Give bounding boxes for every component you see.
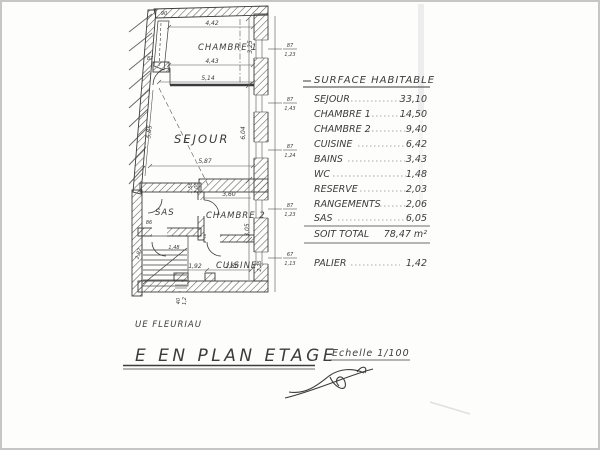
window5-w: 67 <box>287 252 294 258</box>
scale-label: Echelle 1/100 <box>332 348 410 359</box>
window1-h: 1,23 <box>284 52 295 58</box>
window3-h: 1,24 <box>284 153 295 159</box>
dim-bottom-win-h: 1,2 <box>182 297 188 305</box>
scanned-floor-plan-page: CHAMBRE 1 SEJOUR SAS CHAMBRE 2 CUISINE 4… <box>0 0 600 450</box>
table-row-value: 14,50 <box>400 109 427 120</box>
dim-cuisine-width: 2,80 <box>225 263 239 270</box>
floor-plan-drawing: CHAMBRE 1 SEJOUR SAS CHAMBRE 2 CUISINE 4… <box>129 6 297 305</box>
window4-w: 87 <box>287 203 294 209</box>
street-label: UE FLEURIAU <box>135 320 202 330</box>
table-row-value: 6,42 <box>406 139 427 150</box>
dim-door-left: 87 <box>147 56 154 62</box>
signature-scribble <box>285 367 373 398</box>
window4-h: 1,23 <box>284 212 295 218</box>
window2-h: 1,43 <box>284 106 295 112</box>
room-label-sejour: SEJOUR <box>174 132 229 146</box>
table-header: SURFACE HABITABLE <box>314 75 435 86</box>
title-block: UE FLEURIAU E EN PLAN ETAGE Echelle 1/10… <box>123 320 410 398</box>
table-row-label: SEJOUR <box>314 94 350 105</box>
dim-sejour-left: 5,85 <box>145 125 153 139</box>
dim-chambre2-width: 3,60 <box>222 191 236 198</box>
table-row-label: BAINS <box>314 154 343 165</box>
table-palier-label: PALIER <box>314 258 346 269</box>
table-row-value: 2,06 <box>406 199 427 210</box>
dim-chambre2-depth: 3,05 <box>244 223 251 237</box>
table-row-label: CHAMBRE 1 <box>314 109 371 120</box>
table-palier-value: 1,42 <box>406 258 427 269</box>
dim-corner: 90 <box>161 11 167 17</box>
table-row-value: 9,40 <box>406 124 427 135</box>
dim-cuisine-left: 1,92 <box>188 263 202 270</box>
window5-h: 1,13 <box>284 261 295 267</box>
window-annotations: 87 1,23 87 1,43 87 1,24 87 1,23 67 1,13 <box>283 43 297 267</box>
table-row-label: CHAMBRE 2 <box>314 124 371 135</box>
dim-sas-door-h: 2,00 <box>194 182 200 193</box>
table-row-label: SAS <box>314 213 333 224</box>
surface-table: SURFACE HABITABLE SEJOUR 33,10 CHAMBRE 1… <box>303 75 435 269</box>
window3-w: 87 <box>287 144 294 150</box>
table-row-value: 2,03 <box>406 184 427 195</box>
dim-left-c: 1,48 <box>168 245 179 251</box>
window1-w: 87 <box>287 43 294 49</box>
table-row-value: 1,48 <box>406 169 427 180</box>
dim-left-a: 86 <box>146 220 152 226</box>
dim-top-width: 4,42 <box>205 20 219 27</box>
table-row-label: RANGEMENTS <box>314 199 381 210</box>
table-row-label: WC <box>314 169 330 180</box>
drawing-title: E EN PLAN ETAGE <box>135 346 337 366</box>
room-label-sas: SAS <box>155 208 175 218</box>
table-row-value: 33,10 <box>400 94 427 105</box>
dim-chambre1-total: 5,14 <box>201 75 215 82</box>
table-row-label: CUISINE <box>314 139 352 150</box>
dim-cuisine-depth: 2,25 <box>257 260 263 271</box>
dim-sejour-width: 5,87 <box>198 158 212 165</box>
table-row-value: 6,05 <box>406 213 427 224</box>
window2-w: 87 <box>287 97 294 103</box>
dim-sejour-depth: 6,04 <box>240 126 247 140</box>
table-total-value: 78,47 m² <box>384 229 427 240</box>
floor-plan-canvas: CHAMBRE 1 SEJOUR SAS CHAMBRE 2 CUISINE 4… <box>2 2 600 450</box>
room-label-chambre2: CHAMBRE 2 <box>206 211 266 221</box>
dim-chambre1-width: 4,43 <box>205 58 219 65</box>
dim-chambre1-depth: 3,25 <box>247 40 254 54</box>
table-row-value: 3,43 <box>406 154 427 165</box>
table-total-label: SOIT TOTAL <box>314 229 369 240</box>
table-rows: SEJOUR 33,10 CHAMBRE 1 14,50 CHAMBRE 2 9… <box>314 94 427 224</box>
table-row-label: RESERVE <box>314 184 358 195</box>
